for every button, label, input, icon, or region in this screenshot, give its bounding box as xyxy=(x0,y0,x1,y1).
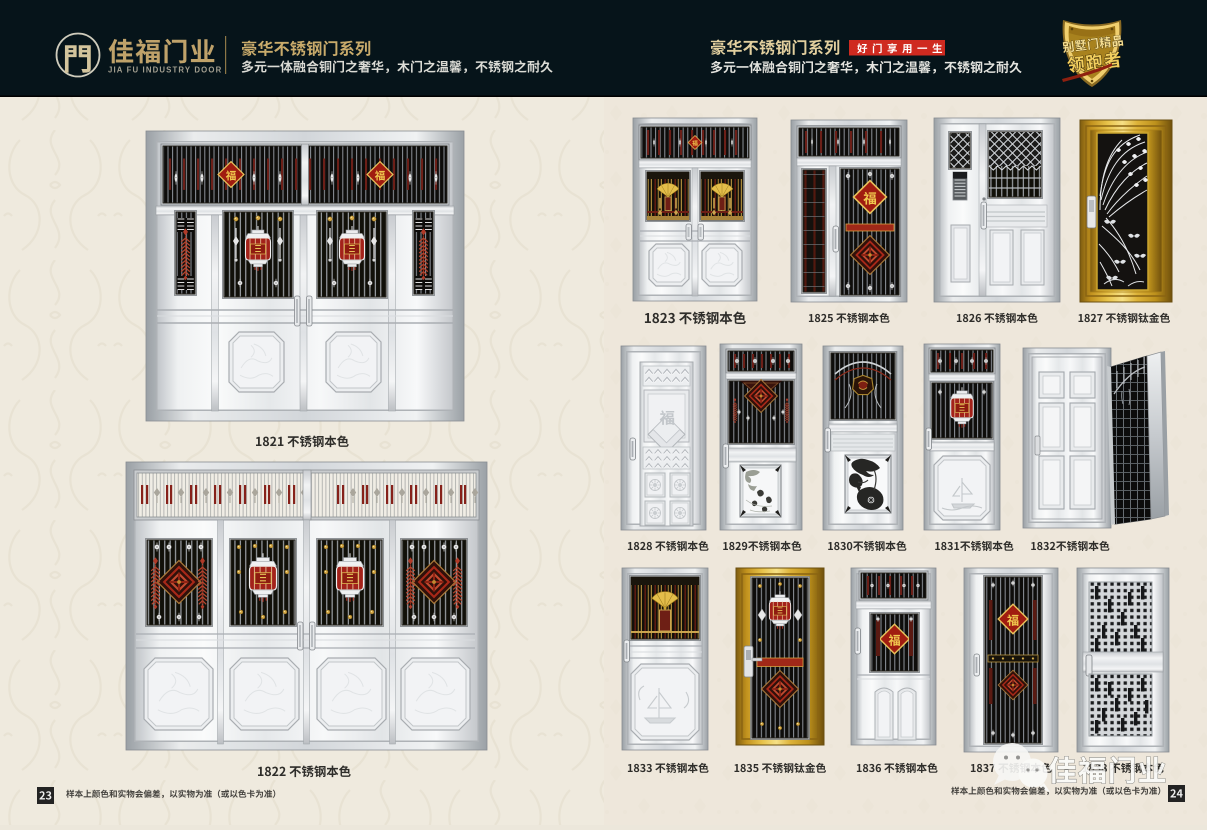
svg-text:JIA FU INDUSTRY DOOR: JIA FU INDUSTRY DOOR xyxy=(108,66,222,75)
